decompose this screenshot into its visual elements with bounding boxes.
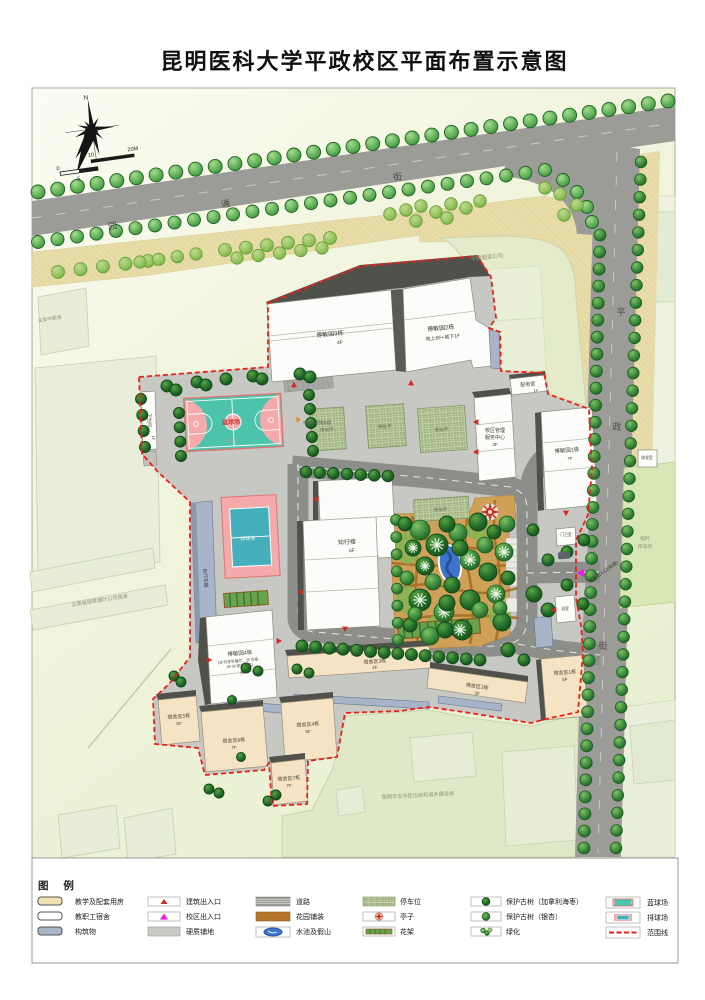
svg-text:建筑出入口: 建筑出入口 — [186, 897, 221, 906]
svg-text:6F: 6F — [349, 548, 355, 554]
svg-text:教学及配套用房: 教学及配套用房 — [75, 897, 124, 906]
svg-text:亭子: 亭子 — [400, 912, 414, 921]
svg-text:花架: 花架 — [400, 927, 414, 936]
svg-text:停车位: 停车位 — [400, 897, 421, 906]
svg-text:浴室: 浴室 — [561, 606, 569, 611]
svg-text:停车场: 停车场 — [638, 543, 653, 550]
svg-text:1F: 1F — [534, 388, 539, 393]
svg-text:5F: 5F — [305, 729, 311, 734]
svg-text:校区出入口: 校区出入口 — [186, 912, 221, 921]
svg-text:构筑物: 构筑物 — [75, 927, 96, 936]
svg-text:5F: 5F — [474, 691, 480, 697]
svg-text:街: 街 — [392, 170, 402, 182]
svg-text:排球场: 排球场 — [647, 913, 668, 922]
svg-text:教职工宿舍: 教职工宿舍 — [75, 912, 110, 921]
svg-text:7F: 7F — [567, 456, 573, 461]
svg-text:临时: 临时 — [640, 535, 650, 542]
svg-text:服务中心: 服务中心 — [485, 434, 505, 441]
svg-text:10: 10 — [88, 152, 95, 159]
svg-text:硬质铺地: 硬质铺地 — [186, 927, 214, 936]
svg-text:保护古树（加拿利海枣）: 保护古树（加拿利海枣） — [506, 897, 583, 906]
svg-text:蓝球场: 蓝球场 — [647, 898, 668, 907]
svg-text:7F: 7F — [231, 745, 237, 750]
svg-text:道路: 道路 — [296, 897, 310, 906]
svg-text:街: 街 — [598, 640, 607, 651]
svg-text:校区管理: 校区管理 — [485, 427, 505, 434]
svg-text:花园铺装: 花园铺装 — [296, 912, 324, 921]
svg-text:5F: 5F — [176, 721, 182, 726]
svg-text:5F: 5F — [240, 670, 246, 675]
svg-text:保护古树（银杏）: 保护古树（银杏） — [506, 912, 562, 921]
svg-text:绿化: 绿化 — [506, 927, 520, 936]
svg-text:平: 平 — [616, 307, 625, 317]
svg-text:水池及假山: 水池及假山 — [296, 927, 331, 936]
svg-text:排球场: 排球场 — [240, 535, 255, 543]
svg-text:外籍教师服务楼: 外籍教师服务楼 — [303, 419, 331, 425]
svg-text:5F: 5F — [562, 677, 568, 682]
svg-text:4F: 4F — [372, 665, 378, 670]
svg-text:门卫室: 门卫室 — [560, 532, 572, 537]
svg-text:3F: 3F — [492, 442, 498, 447]
svg-text:1F: 1F — [151, 436, 156, 441]
svg-text:4F: 4F — [337, 340, 343, 347]
svg-text:通: 通 — [220, 198, 230, 209]
svg-text:收发室: 收发室 — [641, 455, 653, 460]
svg-text:7F: 7F — [286, 783, 292, 788]
svg-text:范围线: 范围线 — [647, 928, 668, 937]
svg-text:卫生间: 卫生间 — [146, 413, 153, 427]
svg-text:园: 园 — [107, 220, 117, 231]
svg-text:政: 政 — [612, 421, 621, 432]
svg-text:图 例: 图 例 — [38, 879, 80, 892]
